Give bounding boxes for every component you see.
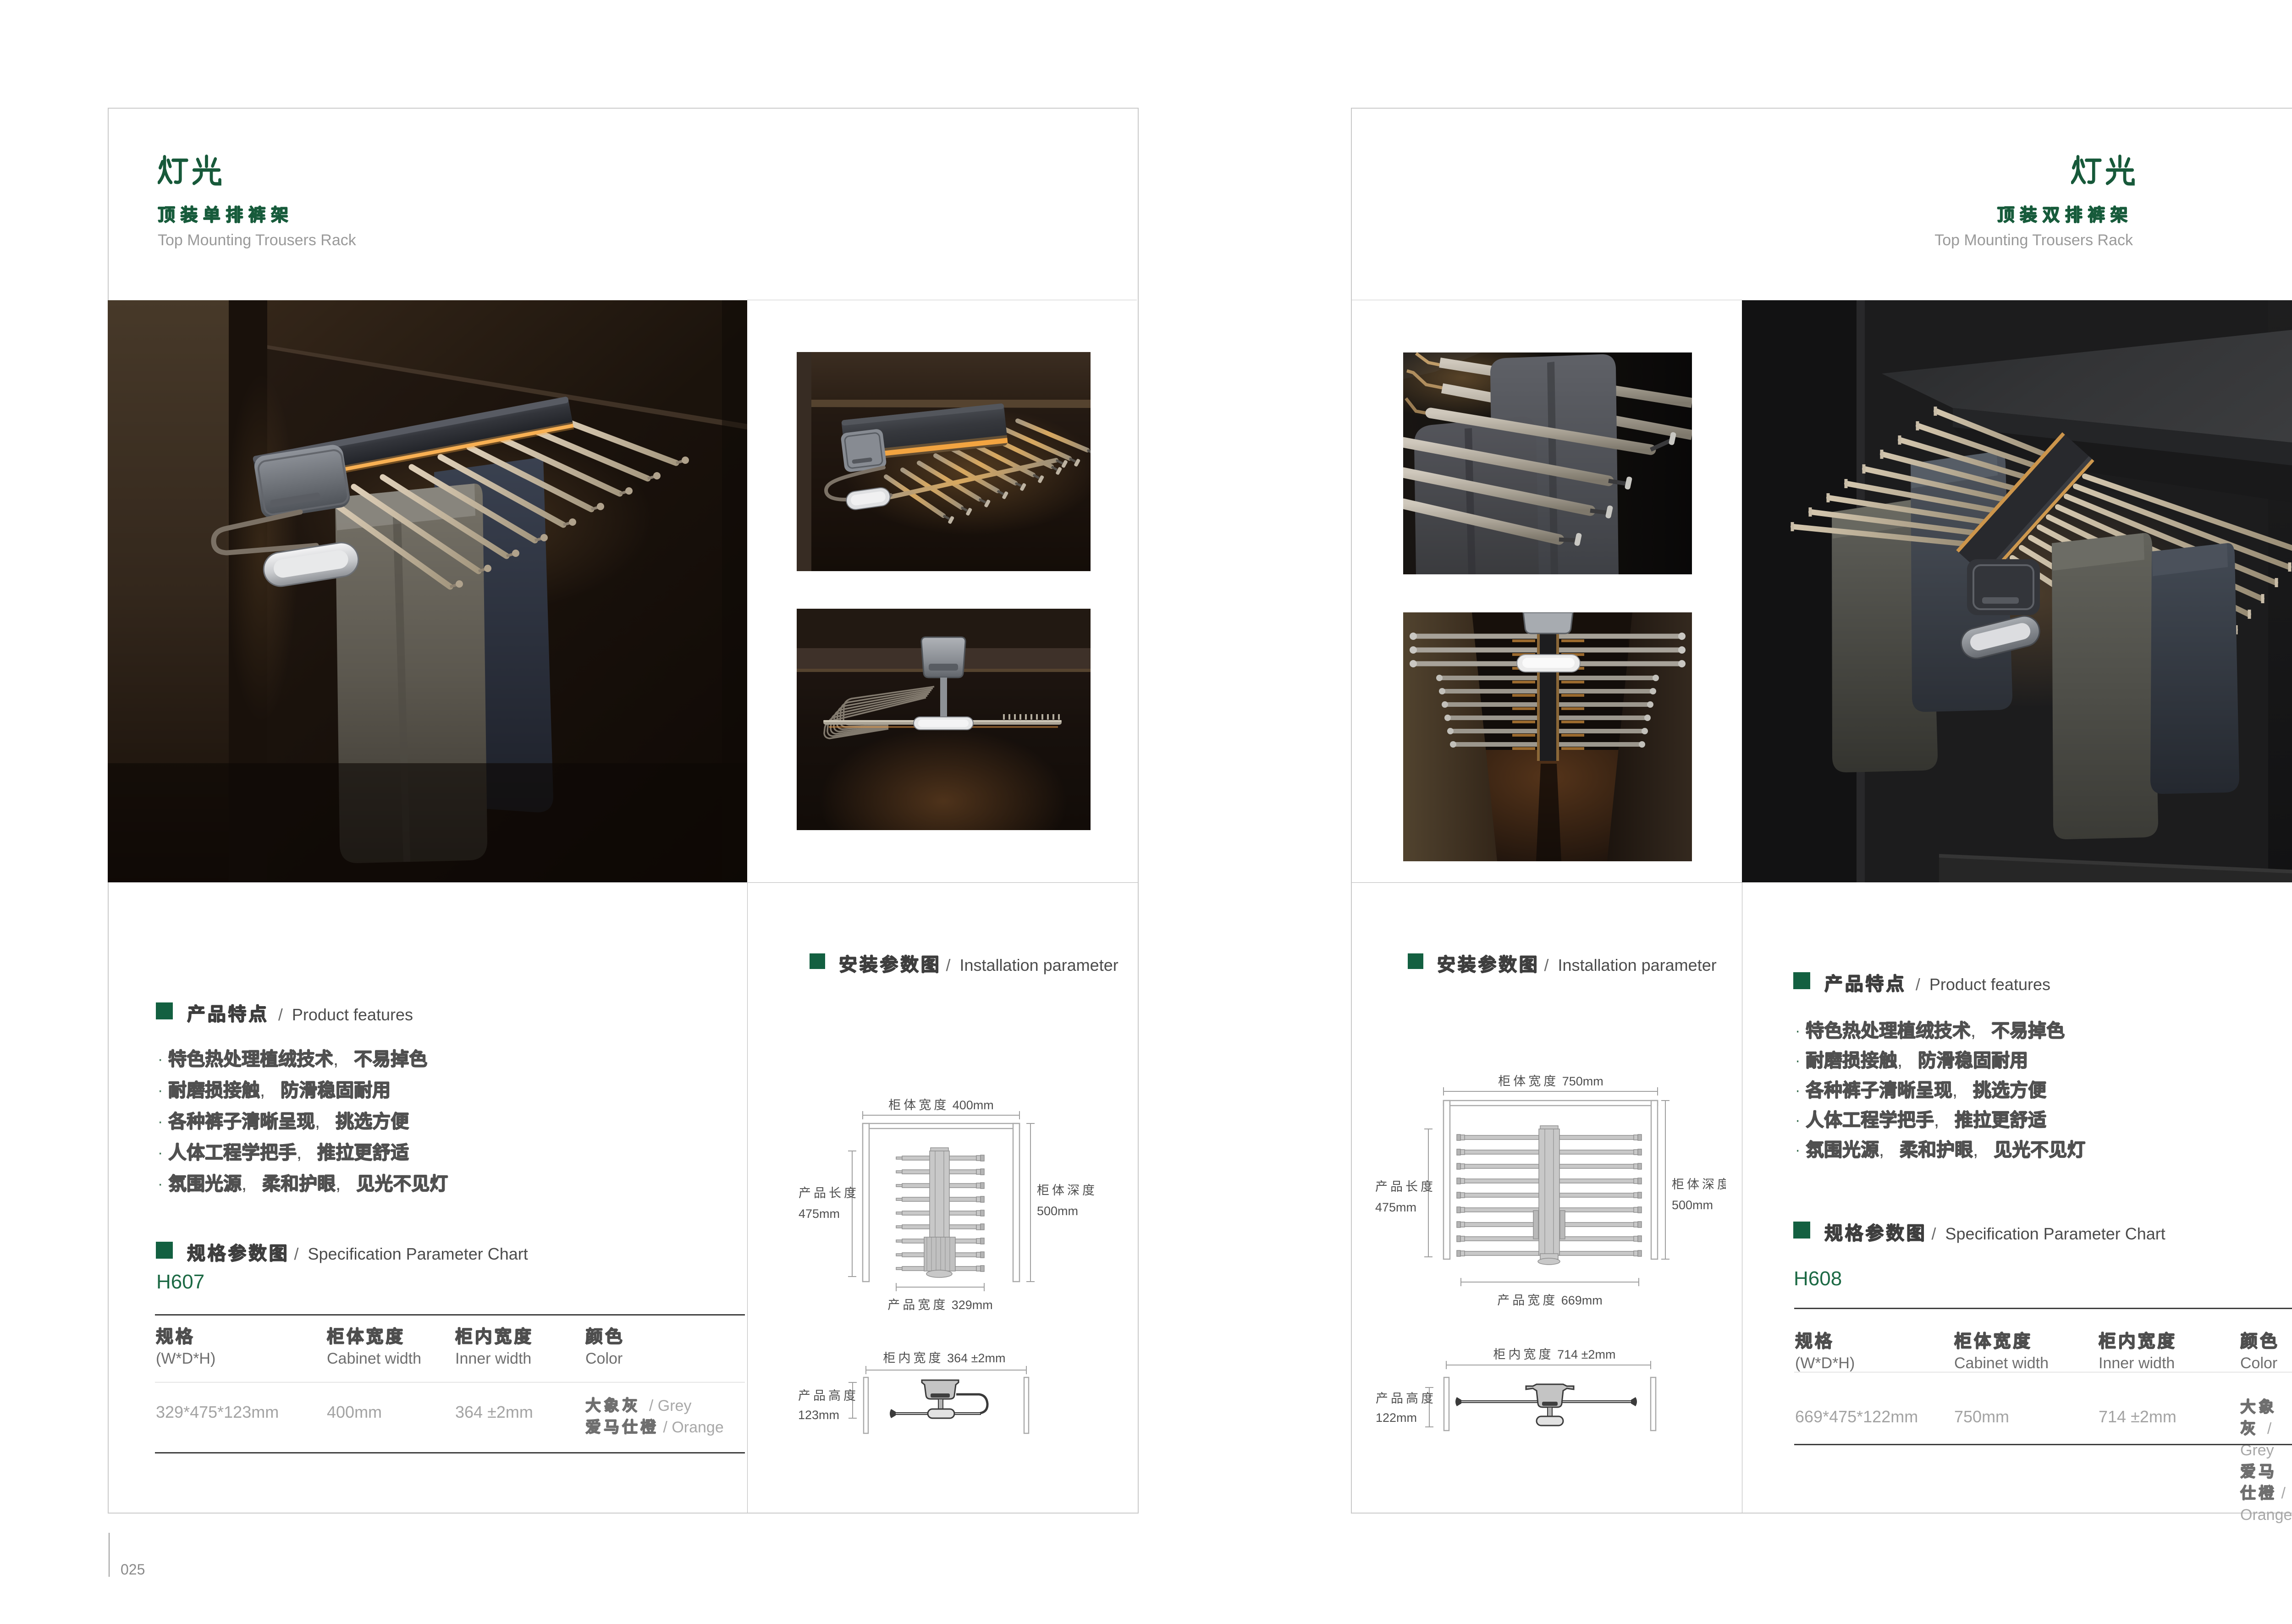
svg-text:产品宽度 329mm: 产品宽度 329mm: [887, 1298, 993, 1312]
svg-text:123mm: 123mm: [798, 1408, 839, 1422]
svg-text:产品高度: 产品高度: [1376, 1392, 1436, 1405]
svg-text:475mm: 475mm: [1375, 1200, 1416, 1214]
svg-text:500mm: 500mm: [1672, 1198, 1713, 1212]
svg-text:产品长度: 产品长度: [799, 1186, 859, 1200]
svg-text:柜体深度: 柜体深度: [1037, 1184, 1097, 1197]
svg-text:500mm: 500mm: [1037, 1204, 1078, 1218]
svg-text:柜体宽度 750mm: 柜体宽度 750mm: [1498, 1074, 1603, 1088]
svg-text:产品宽度 669mm: 产品宽度 669mm: [1497, 1294, 1603, 1307]
svg-text:柜体深度: 柜体深度: [1672, 1178, 1726, 1191]
svg-text:产品高度: 产品高度: [798, 1389, 859, 1403]
svg-text:产品长度: 产品长度: [1375, 1180, 1436, 1194]
svg-text:122mm: 122mm: [1376, 1411, 1417, 1425]
svg-text:475mm: 475mm: [799, 1207, 840, 1221]
svg-text:柜内宽度 714 ±2mm: 柜内宽度 714 ±2mm: [1493, 1348, 1616, 1361]
svg-text:柜内宽度 364 ±2mm: 柜内宽度 364 ±2mm: [883, 1351, 1006, 1365]
svg-text:柜体宽度 400mm: 柜体宽度 400mm: [888, 1098, 994, 1112]
